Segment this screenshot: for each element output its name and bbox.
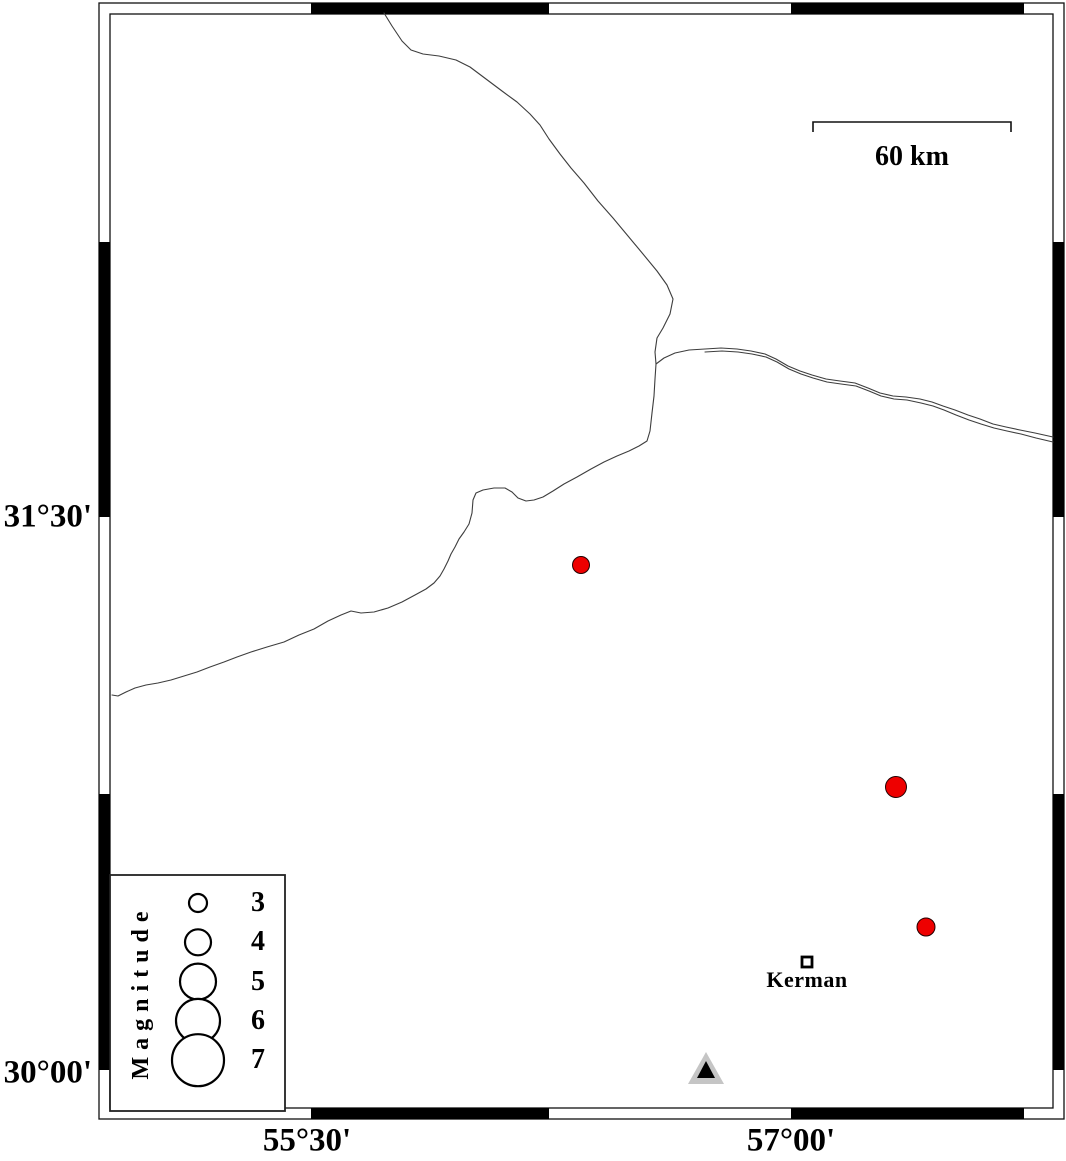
frame-segment-top: [791, 3, 1024, 14]
epicenter-layer: [573, 557, 936, 937]
frame-segment-left: [99, 794, 110, 1070]
map-svg: [0, 0, 1066, 1161]
river-line: [705, 351, 1053, 442]
legend-magnitude-label: 3: [251, 889, 265, 917]
legend-circle-mag-7: [172, 1034, 224, 1086]
epicenter-marker: [573, 557, 590, 574]
lat-label-30-00: 30°00': [0, 1057, 92, 1090]
epicenter-marker: [886, 777, 907, 798]
legend-circle-mag-3: [189, 894, 207, 912]
lon-label-57-00: 57°00': [747, 1125, 835, 1158]
map-figure: 31°30' 30°00' 55°30' 57°00' 60 km Kerman…: [0, 0, 1066, 1161]
frame-segment-top: [311, 3, 549, 14]
scale-bar: [813, 122, 1011, 132]
river-layer: [112, 13, 1053, 696]
frame-segment-right: [1053, 242, 1064, 517]
station-marker: [688, 1052, 724, 1084]
frame-segment-left: [99, 242, 110, 517]
lon-label-55-30: 55°30': [263, 1125, 351, 1158]
legend-magnitude-label: 6: [251, 1007, 265, 1035]
legend-title: Magnitude: [129, 904, 153, 1079]
legend-circle-mag-4: [185, 929, 211, 955]
city-label: Kerman: [766, 969, 847, 991]
legend-magnitude-label: 7: [251, 1046, 265, 1074]
city-square-icon: [802, 957, 812, 967]
river-line: [112, 13, 673, 696]
scale-bar-label: 60 km: [875, 143, 949, 171]
scale-bar-bracket: [813, 122, 1011, 132]
lat-label-31-30: 31°30': [0, 501, 92, 534]
legend-circle-mag-5: [180, 964, 216, 1000]
epicenter-marker: [917, 918, 935, 936]
river-line: [656, 348, 1053, 437]
frame-segment-bottom: [791, 1108, 1024, 1119]
frame-segment-bottom: [311, 1108, 549, 1119]
legend-magnitude-label: 4: [251, 928, 265, 956]
legend-magnitude-label: 5: [251, 968, 265, 996]
frame-segment-right: [1053, 794, 1064, 1070]
city-marker: [802, 957, 812, 967]
